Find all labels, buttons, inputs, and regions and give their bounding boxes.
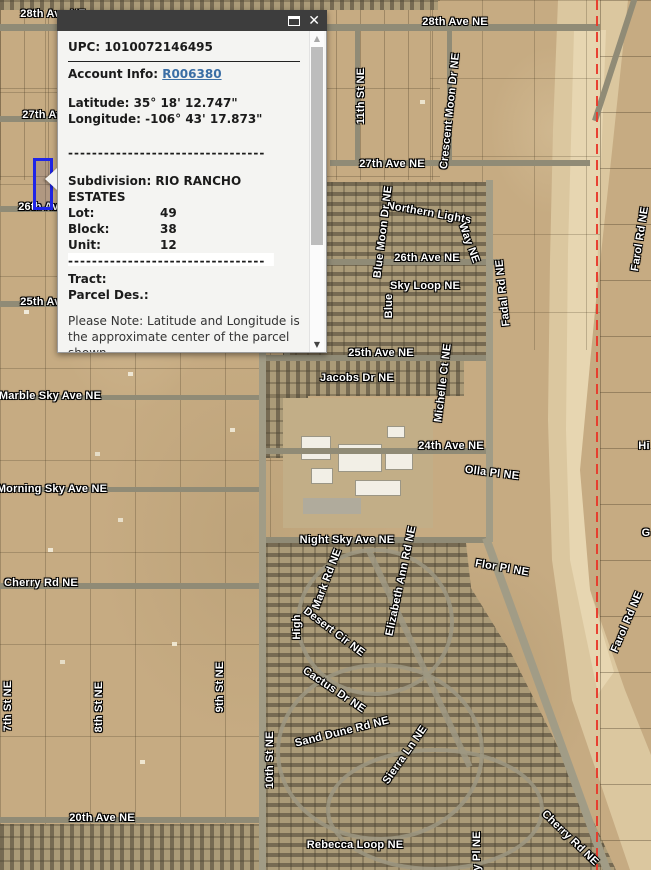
close-icon[interactable]: ✕ (308, 14, 320, 28)
road-10th-st (259, 350, 266, 870)
account-link[interactable]: R006380 (162, 67, 221, 81)
street-label: Cherry Rd NE (4, 577, 78, 589)
street-label: 10th St NE (264, 731, 276, 788)
building (387, 426, 405, 438)
building (355, 480, 401, 496)
street-label: 20th Ave NE (69, 812, 135, 824)
loop-street (326, 748, 544, 870)
maximize-icon[interactable] (288, 16, 300, 26)
street-label: Morning Sky Ave NE (0, 483, 107, 495)
parcel-grid-right (600, 0, 651, 870)
boundary-dashed-line (596, 0, 598, 870)
unit-row: Unit:12 (68, 237, 302, 253)
street-label: 28th Ave NE (422, 16, 488, 28)
parcel-des-label: Parcel Des.: (68, 287, 302, 303)
account-info-row: Account Info: R006380 (68, 66, 302, 82)
street-label: Night Sky Ave NE (300, 534, 395, 546)
street-label: Marble Sky Ave NE (0, 390, 101, 402)
block-value: 38 (160, 222, 177, 236)
scroll-down-icon[interactable]: ▼ (310, 338, 324, 351)
unit-value: 12 (160, 238, 177, 252)
street-label: 24th Ave NE (418, 440, 484, 452)
street-label: High (291, 614, 303, 639)
dashed-divider: --------------------------------- (68, 253, 302, 269)
street-label: 7th St NE (2, 681, 14, 732)
subdivision-value: Subdivision: RIO RANCHO ESTATES (68, 173, 268, 205)
street-label: 25th Ave NE (348, 347, 414, 359)
building (311, 468, 333, 484)
tract-label: Tract: (68, 271, 302, 287)
popup-titlebar: ✕ (57, 10, 327, 31)
note-text: Please Note: Latitude and Longitude is t… (68, 313, 302, 353)
street-label: Rebecca Loop NE (307, 839, 404, 851)
street-label: G (642, 527, 651, 539)
street-label: y Pl NE (471, 831, 483, 870)
latitude-value: Latitude: 35° 18' 12.747" (68, 95, 302, 111)
map-region (0, 824, 262, 870)
street-label: Blue (383, 294, 395, 319)
street-label: Sky Loop NE (390, 280, 460, 292)
street-label: 8th St NE (93, 682, 105, 733)
street-label: 9th St NE (214, 662, 226, 713)
lot-label: Lot: (68, 205, 160, 221)
street-label: Hi (638, 440, 649, 452)
lot-value: 49 (160, 206, 177, 220)
popup-callout-arrow (45, 168, 57, 190)
block-label: Block: (68, 221, 160, 237)
street-label: 26th Ave NE (394, 252, 460, 264)
map-viewport[interactable]: 28th Ave NE28th Ave NE27th Ave NE27th Av… (0, 0, 651, 870)
rural-buildings (24, 310, 29, 314)
street-label: 27th Ave NE (359, 158, 425, 170)
dashed-divider: --------------------------------- (68, 145, 302, 161)
street-label: Jacobs Dr NE (320, 372, 394, 384)
unit-label: Unit: (68, 237, 160, 253)
road-fadal (486, 180, 493, 542)
scroll-thumb[interactable] (311, 47, 323, 245)
block-row: Block:38 (68, 221, 302, 237)
parcel-info-popup: ✕ UPC: 1010072146495 Account Info: R0063… (57, 10, 327, 353)
account-info-label: Account Info: (68, 67, 162, 81)
school-campus (283, 398, 433, 528)
popup-body: UPC: 1010072146495 Account Info: R006380… (57, 31, 327, 353)
scroll-up-icon[interactable]: ▲ (310, 32, 324, 45)
lot-row: Lot:49 (68, 205, 302, 221)
upc-value: UPC: 1010072146495 (68, 39, 302, 55)
parking-lot (303, 498, 361, 514)
popup-scrollbar[interactable]: ▲ ▼ (309, 31, 324, 352)
longitude-value: Longitude: -106° 43' 17.873" (68, 111, 302, 127)
divider-line (68, 61, 300, 62)
street-label: 11th St NE (355, 68, 367, 124)
